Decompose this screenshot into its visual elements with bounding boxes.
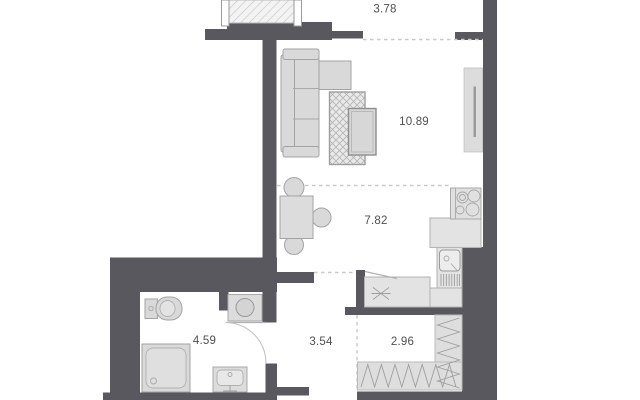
floor-plan-canvas: 3.78 10.89 7.82 3.54 2.96 4.59 [0, 0, 640, 400]
tv-screen [474, 87, 477, 138]
bathroom-sink [213, 367, 247, 392]
sofa-arm-bottom [283, 147, 319, 158]
washing-machine [228, 295, 262, 322]
sink-basin [440, 250, 461, 271]
kitchen-sink-unit [437, 248, 462, 289]
wall-door-jamb [266, 364, 278, 400]
dining-chair-top [284, 178, 304, 198]
floor-plan: 3.78 10.89 7.82 3.54 2.96 4.59 [0, 0, 640, 400]
sofa-arm-top [283, 49, 319, 60]
kitchen-counter-below-sink [430, 288, 462, 307]
tv-unit [464, 68, 483, 152]
washing-machine-door [236, 299, 254, 317]
window-post-right [294, 0, 302, 26]
wall-hallway-right [356, 270, 365, 313]
label-kitchen-area: 7.82 [364, 215, 387, 227]
label-living-area: 10.89 [399, 116, 429, 128]
window-post-left [222, 0, 230, 26]
living-room-furniture [281, 49, 483, 165]
bathroom-door [226, 323, 267, 364]
wall-bathroom-bottom [103, 393, 277, 400]
window-glazing [229, 0, 294, 23]
label-bathroom-area: 4.59 [193, 335, 216, 347]
label-hallway-area: 3.54 [309, 336, 333, 348]
wall-hallway-top-stub [276, 272, 314, 283]
shower [142, 344, 190, 392]
label-balcony-area: 3.78 [373, 4, 396, 16]
toilet [145, 297, 182, 320]
dining-set [280, 178, 331, 255]
kitchen-counter-hob [365, 277, 431, 307]
stove [451, 188, 482, 219]
dining-chair-right [312, 208, 331, 227]
coffee-table [349, 109, 377, 156]
kitchen-counter-corner [430, 218, 481, 248]
door-swing-arc [226, 323, 267, 364]
wall-bath-pier [219, 292, 229, 311]
sofa-seat [293, 57, 319, 151]
dining-table [280, 196, 313, 239]
wall-right-outer [483, 0, 497, 247]
wall-right-thick [462, 247, 497, 400]
wardrobe-hatch [358, 315, 463, 390]
sofa-chaise [318, 61, 351, 90]
wall-bathroom-left [110, 258, 140, 400]
label-storage-area: 2.96 [391, 336, 414, 348]
balcony-window [222, 0, 302, 26]
sofa-back [281, 55, 295, 152]
